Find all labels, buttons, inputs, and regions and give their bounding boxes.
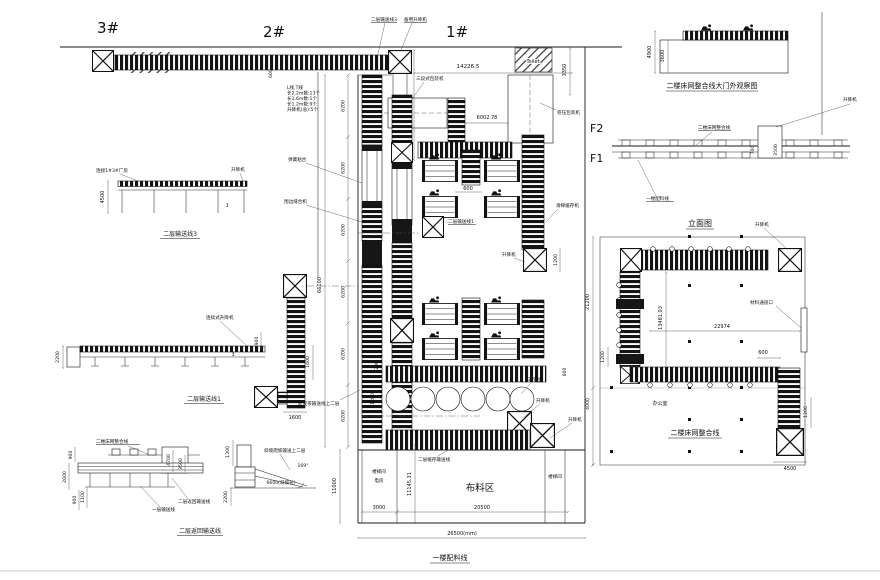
dim-1200-mid: 1200 — [553, 248, 560, 272]
sewing-machine-icon — [491, 189, 501, 195]
dim-4500-planR: 4500 — [774, 462, 806, 472]
dim-3000-text: 3000 — [373, 505, 386, 511]
right-buffer-strip — [522, 135, 544, 250]
dim-1300-text: 1300 — [225, 446, 231, 458]
vertical-buffer-conveyor — [287, 298, 305, 408]
dim-1200-planR-right: 1200 — [803, 397, 811, 428]
dim-26500: 26500(mm) — [358, 531, 585, 538]
rollpress-label: 卷压包装机 — [557, 109, 580, 116]
work-cell — [422, 338, 458, 360]
dim-6200: 6200 — [341, 162, 347, 174]
dim-600-text: 600 — [758, 350, 768, 356]
lift-crossbox — [254, 386, 277, 407]
dim-14226-text: 14226.5 — [457, 64, 480, 70]
lift-crossbox — [778, 248, 801, 271]
cad-factory-layout-drawing: 3# 2# 1# 二层输送线3 备用升降机 600 L线,T线 长2.2m数:1… — [0, 0, 880, 580]
bottom-net-conveyor — [630, 367, 780, 382]
dim-1200-text: 1200 — [370, 393, 376, 405]
dim-3350: 3350 — [562, 48, 570, 95]
slide-buffer-label: 滑梯缓存机 — [556, 202, 579, 209]
gate-view-title: 二楼床网整合线大门外观察图 — [667, 81, 758, 90]
dim-11145-text: 11145.31 — [407, 472, 413, 496]
main-plan-title: 一楼配料线 — [433, 553, 468, 562]
elev1-title: 二层输送线3 — [163, 230, 197, 238]
line-count-note: L线,T线 长2.2m数:13个 长1.6m数:1个 长1.2m数:9个 升降机… — [287, 84, 320, 113]
left-net-conveyor — [620, 272, 640, 368]
dim-11000-text: 11000 — [332, 478, 338, 494]
dim-4500-text: 4500 — [100, 191, 106, 204]
lift-label: 升降机 — [755, 221, 769, 228]
dim-6200: 6200 — [341, 286, 347, 298]
dim-2600-text: 2600 — [62, 471, 68, 483]
dim-900-text: 900 — [254, 337, 260, 346]
label-material-door: 材料通道口 — [750, 299, 801, 328]
link-label: 连接1#3#厂房 — [96, 167, 128, 174]
dim-1200-planR-left: 1200 — [600, 347, 608, 367]
net-line-label: 二楼床网整合线 — [96, 438, 129, 445]
note-line-4: 长1.2m数:9个 — [287, 101, 317, 108]
dim-900a-text: 900 — [68, 451, 74, 460]
dim-2600: 2600 — [62, 463, 69, 490]
sewing-machine-icon — [491, 331, 501, 337]
label-packer3: 三段式包装机 — [412, 75, 444, 99]
dim-6600-text: 6600(斜坡长) — [266, 479, 295, 486]
work-cell — [484, 160, 520, 182]
first-floor-line-label: 一楼配料线 — [646, 195, 669, 202]
conveyor3-label: 二层输送线3 — [371, 16, 397, 23]
dim-6200: 6200 — [341, 410, 347, 422]
dim-20500-text: 20500 — [474, 505, 490, 511]
stairwell-label: 楼梯间 — [372, 468, 386, 475]
note-line-2: 长2.2m数:13个 — [287, 90, 320, 97]
power-room-label: 电房 — [374, 477, 384, 484]
second-floor-net-plan: 材料通道口 办公室 21200 4000 1200 13481.03 22974… — [585, 235, 811, 472]
lift-crossbox — [422, 216, 443, 237]
lift-crossbox — [531, 424, 555, 448]
lift-label: 升降机 — [231, 166, 245, 173]
elevation-title: 立面图 — [688, 218, 712, 228]
dim-13481-text: 13481.03 — [658, 306, 664, 330]
fabric-area-label: 布料区 — [466, 482, 495, 494]
dim-900-b: 900 — [72, 490, 79, 510]
dim-6002-text: 6002.78 — [477, 115, 498, 121]
label-lift-e1: 升降机 — [231, 166, 245, 181]
dim-1200-text: 1200 — [553, 254, 559, 266]
dim-1200-left-a: 1200 — [374, 361, 380, 373]
dim-3500-text: 3500 — [773, 144, 779, 156]
lift-label: 升降机 — [502, 251, 516, 258]
dim-21200-text: 21200 — [585, 294, 591, 310]
label-lift-mid: 升降机 — [502, 251, 525, 262]
conveyor-rollers — [648, 383, 753, 388]
ramp-detail: 169° 斜坡爬坡输送上二层 1300 2200 6600(斜坡长) — [223, 440, 316, 506]
lift-crossbox — [391, 142, 412, 162]
building-2-label: 2# — [263, 23, 285, 41]
lift-symbol: ↕ — [225, 203, 229, 209]
deck-posts — [622, 140, 842, 158]
dim-66100-text: 66100 — [317, 277, 323, 293]
lift-label: 升降机 — [843, 96, 857, 103]
dim-4700-text: 4700 — [166, 454, 172, 466]
label-buffer-line: 二层缓存输送线 — [418, 450, 451, 463]
dim-4900-text: 4900 — [647, 46, 653, 59]
mid-buffer-strip — [462, 150, 480, 185]
sewing-machine-icon — [429, 296, 439, 302]
floor-f2-label: F2 — [590, 122, 603, 135]
net-plan-title: 二楼床网整合线 — [671, 428, 720, 437]
label-new-belt: 新皮带输送线上二层 — [298, 390, 360, 407]
net-line-label: 二楼床网整合线 — [698, 124, 731, 131]
lift-crossbox — [283, 274, 306, 297]
work-cell — [484, 303, 520, 325]
conveyor-column-1 — [362, 75, 382, 443]
machine-icon — [701, 24, 711, 30]
conveyor1-label: 二层输送线1 — [448, 218, 474, 225]
first-floor-line-label: 一层输送线 — [152, 506, 175, 513]
dim-1600-a: 1600 — [305, 345, 313, 380]
label-first-floor-lineR: 一楼配料线 — [638, 160, 674, 202]
sewing-machine-icon — [491, 296, 501, 302]
dim-4000-text: 4000 — [585, 398, 591, 410]
building-3-label: 3# — [97, 19, 119, 37]
label-slide-buffer: 滑梯缓存机 — [546, 202, 579, 222]
toilet-label: Toilet — [525, 59, 539, 65]
packer3-label: 三段式包装机 — [416, 75, 444, 82]
label-lift-planR-top: 升降机 — [755, 221, 786, 248]
right-elevation: F2 F1 二楼床网整合线 升降机 700 3500 一楼配料线 立面图 升降机 — [590, 96, 857, 248]
packer-outfeed-conveyor — [448, 98, 465, 142]
dim-3600-text: 3600 — [660, 50, 666, 63]
label-edge-sewing: 围边缝合机 — [284, 198, 362, 222]
lift-label: 升降机 — [536, 397, 550, 404]
dim-1100-text: 1100 — [80, 491, 86, 503]
dim-6200: 6200 — [341, 100, 347, 112]
dim-1600-b: 1600 — [283, 412, 307, 421]
ramp-angle: 169° — [297, 463, 308, 469]
buffer-band — [386, 366, 546, 382]
dim-2200: 2200 — [55, 346, 63, 368]
dim-11000: 11000 — [332, 450, 340, 523]
dim-22974: 22974 — [650, 324, 800, 331]
backup-lift-label: 备用升降机 — [404, 16, 427, 23]
dim-600-planR: 600 — [758, 350, 780, 358]
lift-crossbox — [620, 248, 641, 271]
label-continuous-lift: 连续式升降机 — [206, 314, 247, 346]
ramp-label: 斜坡爬坡输送上二层 — [264, 447, 306, 454]
lift-crossbox — [388, 50, 411, 73]
right-buffer-strip — [522, 300, 544, 358]
dim-2200-ramp: 2200 — [223, 488, 231, 506]
label-first-floor-line: 一层输送线 — [140, 486, 175, 513]
work-cell — [422, 303, 458, 325]
dim-4500: 4500 — [100, 181, 108, 213]
lift-symbol: ↕ — [231, 352, 235, 358]
mid-buffer-strip — [462, 298, 480, 360]
dim-21200: 21200 4000 — [585, 237, 595, 467]
dim-600-right: 600 — [562, 368, 568, 377]
work-cell — [484, 196, 520, 218]
elev2-title: 二层输送线1 — [187, 395, 221, 403]
dim-1600-text: 1600 — [289, 415, 302, 421]
dim-1600-text: 1600 — [305, 356, 311, 368]
dim-22974-text: 22974 — [714, 324, 730, 330]
dim-chain-6200: 6200 6200 6200 6200 6200 6200 — [341, 73, 351, 449]
dim-600-top: 600 — [268, 69, 274, 78]
dim-6200: 6200 — [341, 224, 347, 236]
dim-3350-text: 3350 — [562, 64, 568, 77]
dim-2200-text: 2200 — [55, 351, 61, 363]
dim-1100: 1100 — [80, 487, 87, 508]
note-line-3: 长1.6m数:1个 — [287, 95, 317, 102]
label-return-line: 二层返回输送线 — [172, 478, 211, 505]
dim-4900: 4900 — [647, 31, 655, 73]
label-conv3-leader: 二层输送线3 — [371, 16, 397, 54]
dim-600-text: 600 — [463, 186, 473, 192]
left-elevation-1: ↕ 4500 连接1#3#厂房 升降机 二层输送线3 — [96, 166, 247, 239]
left-elevation-2: ↕ 2200 连续式升降机 900 二层输送线1 — [55, 314, 265, 404]
top-net-conveyor — [642, 250, 768, 270]
building-1-label: 1# — [446, 23, 468, 41]
lift-crossbox — [777, 429, 804, 456]
sewing-machine-icon — [429, 189, 439, 195]
second-floor-conveyor-3 — [114, 55, 388, 70]
label-link-buildings: 连接1#3#厂房 — [96, 167, 138, 181]
dim-900b-text: 900 — [72, 496, 78, 505]
roll-press-packer — [508, 75, 553, 143]
stairwell2-label: 楼梯间 — [548, 473, 562, 480]
dim-1200-text: 1200 — [600, 351, 606, 363]
dim-900-a: 900 — [68, 447, 75, 462]
buffer-line-label: 二层缓存输送线 — [418, 456, 451, 463]
left-elevation-3: 二楼床网整合线 900 2600 900 1100 4700 — [62, 438, 223, 536]
lift-crossbox — [92, 50, 113, 71]
note-line-5: 升降机(总):5个 — [287, 106, 318, 113]
label-backup-lift-leader: 备用升降机 — [401, 16, 427, 50]
dim-1300: 1300 — [225, 440, 233, 466]
dim-1200-text: 1200 — [374, 361, 380, 373]
workbench-label: 工作台 — [527, 376, 541, 383]
lift-label: 升降机 — [568, 416, 582, 423]
dim-4500-text: 4500 — [784, 466, 797, 472]
dim-13481: 13481.03 — [658, 272, 666, 368]
dim-3500-text: 3500 — [178, 458, 184, 470]
return-line-label: 二层返回输送线 — [178, 498, 211, 505]
dim-6200: 6200 — [341, 348, 347, 360]
new-belt-label: 新皮带输送线上二层 — [298, 400, 340, 407]
label-net-line: 二楼床网整合线 — [96, 438, 150, 455]
work-cell — [422, 160, 458, 182]
elev3-title: 二层返回输送线 — [179, 527, 221, 535]
material-door-label: 材料通道口 — [750, 299, 773, 306]
label-lift-elevR: 升降机 — [776, 96, 857, 127]
gate-exterior-view: 4900 3600 二楼床网整合线大门外观察图 — [647, 24, 788, 91]
label-conv1: 二层输送线1 — [448, 218, 476, 225]
sewing-machine-icon — [429, 331, 439, 337]
office-label: 办公室 — [652, 400, 667, 407]
dim-6002: 6002.78 — [466, 115, 508, 123]
right-down-conveyor — [778, 368, 800, 428]
edge-sewing-label: 围边缝合机 — [284, 198, 307, 205]
work-cell — [484, 338, 520, 360]
dim-1200-left-b: 1200 — [370, 393, 376, 405]
lift-crossbox — [390, 319, 413, 343]
dim-600-cells: 600 — [455, 186, 482, 192]
dim-26500-text: 26500(mm) — [447, 531, 477, 537]
machine-icon — [743, 24, 753, 30]
dim-1200-text: 1200 — [803, 406, 809, 418]
floor-f1-label: F1 — [590, 152, 603, 165]
dim-11145: 11145.31 — [407, 445, 415, 523]
work-cell — [422, 196, 458, 218]
bottom-buffer-band — [386, 430, 530, 450]
spring-label: 弹簧粘合 — [288, 156, 307, 163]
dim-2200-text: 2200 — [223, 491, 229, 503]
lift-crossbox — [523, 248, 546, 271]
continuous-lift-label: 连续式升降机 — [206, 314, 234, 321]
note-line-1: L线,T线 — [287, 84, 303, 91]
material-door — [801, 308, 807, 352]
dim-3000-20500: 3000 20500 — [362, 505, 568, 514]
dim-700-text: 700 — [750, 146, 756, 155]
